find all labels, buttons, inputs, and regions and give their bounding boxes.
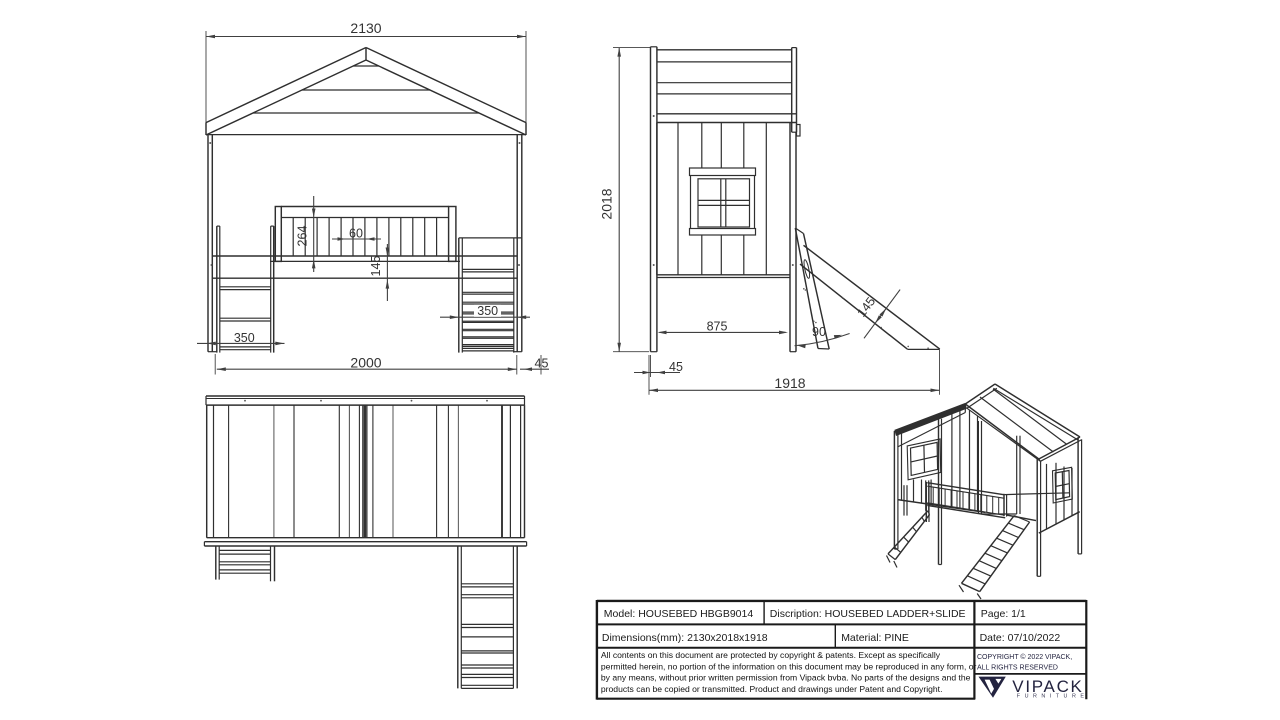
svg-text:2018: 2018	[599, 188, 615, 219]
svg-text:350: 350	[234, 331, 255, 345]
svg-text:145: 145	[369, 256, 383, 277]
svg-text:permitted herein, no portion o: permitted herein, no portion of the info…	[601, 662, 977, 672]
svg-text:350: 350	[477, 304, 498, 318]
svg-text:90: 90	[812, 325, 826, 339]
svg-text:Date: 07/10/2022: Date: 07/10/2022	[980, 632, 1061, 644]
svg-text:ALL RIGHTS RESERVED: ALL RIGHTS RESERVED	[977, 664, 1058, 671]
svg-text:by any means, without prior wr: by any means, without prior written perm…	[601, 673, 971, 683]
svg-text:Page: 1/1: Page: 1/1	[981, 608, 1026, 620]
svg-text:Model: HOUSEBED HBGB9014: Model: HOUSEBED HBGB9014	[604, 608, 754, 620]
svg-text:2130: 2130	[350, 20, 381, 36]
svg-text:FURNITURE: FURNITURE	[1017, 694, 1089, 700]
svg-text:264: 264	[296, 226, 310, 247]
svg-text:145: 145	[854, 295, 878, 320]
svg-text:2000: 2000	[350, 355, 381, 371]
svg-text:45: 45	[669, 360, 683, 374]
svg-text:Material: PINE: Material: PINE	[841, 632, 909, 644]
svg-text:60: 60	[349, 226, 363, 240]
svg-text:COPYRIGHT © 2022 VIPACK,: COPYRIGHT © 2022 VIPACK,	[977, 653, 1072, 661]
svg-text:Dimensions(mm): 2130x2018x1918: Dimensions(mm): 2130x2018x1918	[602, 632, 768, 644]
svg-text:875: 875	[707, 320, 728, 334]
svg-text:1918: 1918	[774, 375, 805, 391]
svg-text:45: 45	[535, 357, 549, 371]
svg-text:All contents on this document: All contents on this document are protec…	[601, 650, 941, 660]
svg-text:products can be copied or tran: products can be copied or transmitted. P…	[601, 684, 943, 694]
svg-text:Discription: HOUSEBED LADDER+S: Discription: HOUSEBED LADDER+SLIDE	[770, 608, 966, 620]
